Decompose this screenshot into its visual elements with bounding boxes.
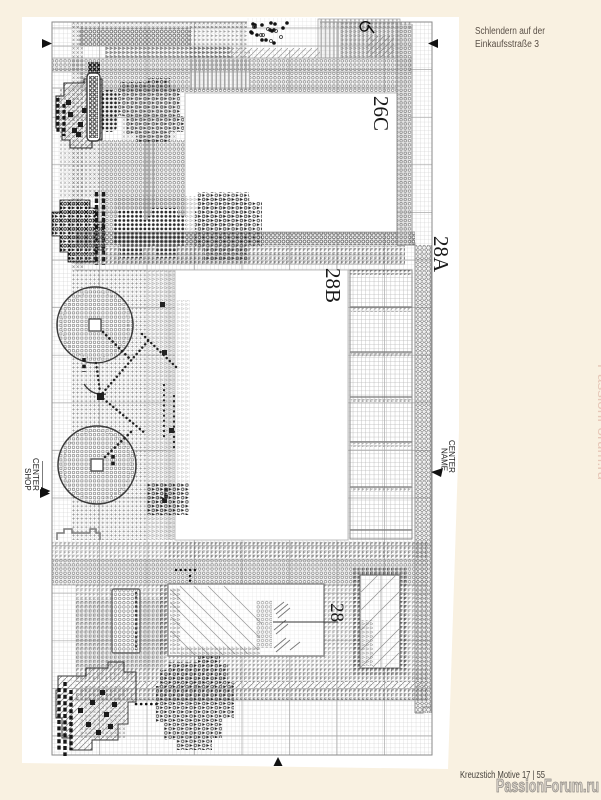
svg-text:28: 28 <box>326 603 347 622</box>
svg-text:NAME: NAME <box>440 448 449 471</box>
svg-text:PassionForum.ru: PassionForum.ru <box>595 364 601 480</box>
svg-text:28B: 28B <box>321 268 345 303</box>
svg-text:SHOP: SHOP <box>23 468 32 491</box>
svg-text:26C: 26C <box>369 96 393 131</box>
svg-text:Einkaufsstraße 3: Einkaufsstraße 3 <box>475 39 539 50</box>
svg-text:28A: 28A <box>429 236 453 273</box>
svg-text:PassionForum.ru: PassionForum.ru <box>496 775 599 796</box>
svg-text:Schlendern auf der: Schlendern auf der <box>475 26 546 37</box>
